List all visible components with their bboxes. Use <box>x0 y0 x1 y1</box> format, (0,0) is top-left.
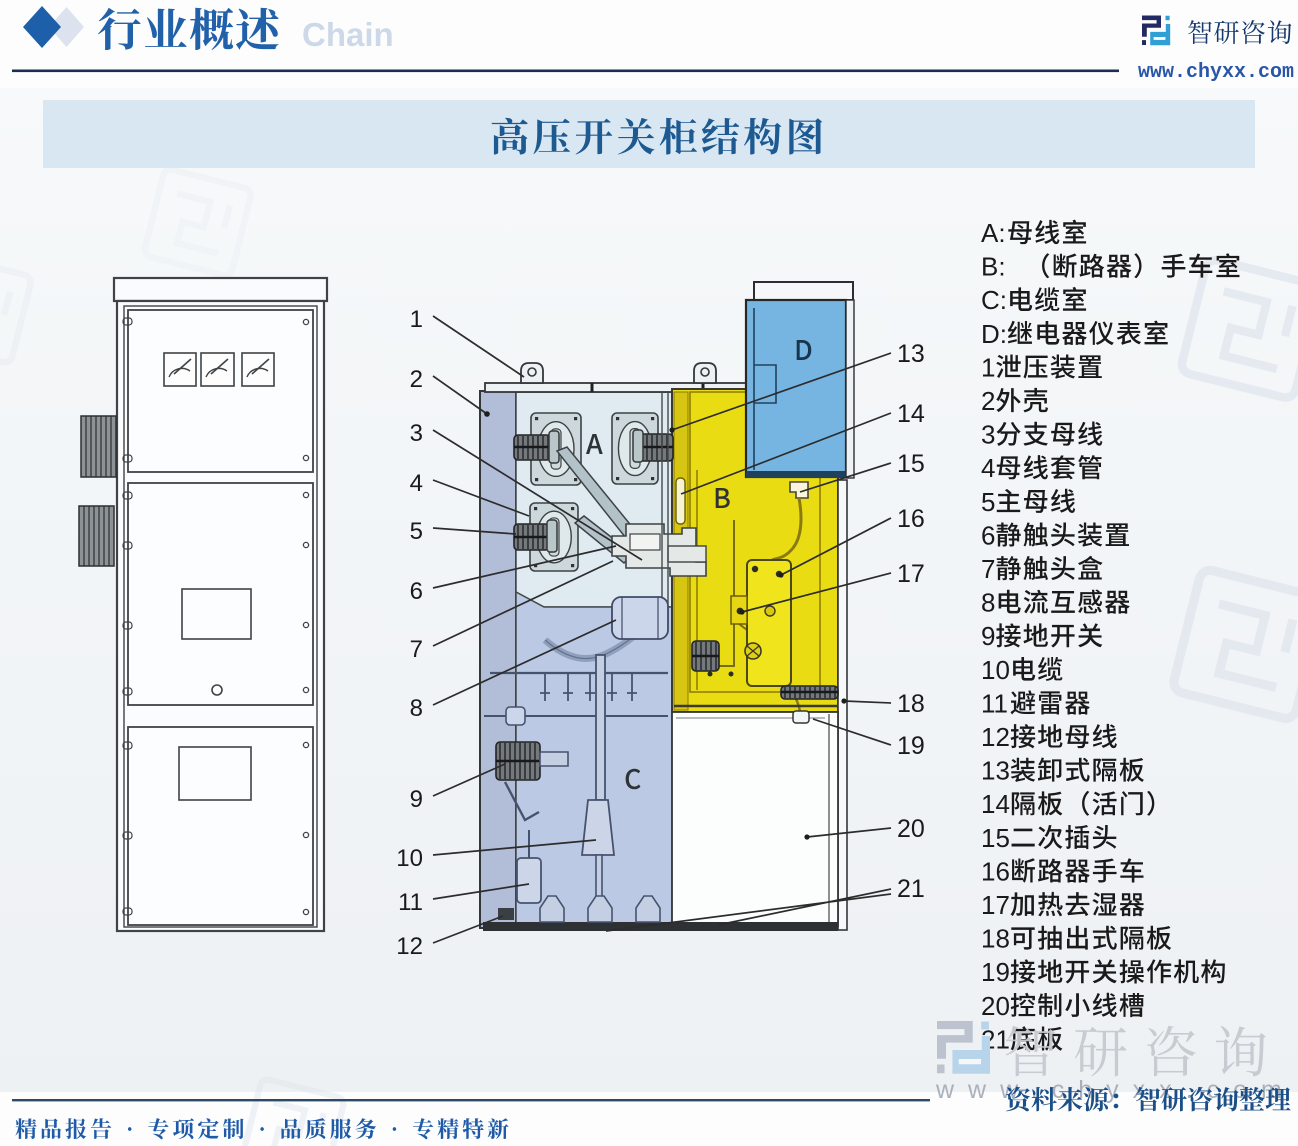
svg-text:4: 4 <box>410 470 423 497</box>
svg-text:16: 16 <box>897 505 925 533</box>
svg-text:17: 17 <box>897 560 925 588</box>
svg-text:10: 10 <box>981 655 1010 685</box>
svg-text:12: 12 <box>981 722 1010 752</box>
svg-text:2: 2 <box>981 386 995 416</box>
svg-text:2: 2 <box>410 366 423 393</box>
svg-text:6: 6 <box>981 520 995 550</box>
svg-text:www.chyxx.com: www.chyxx.com <box>1138 61 1294 84</box>
svg-text:16: 16 <box>981 856 1010 886</box>
svg-text:6: 6 <box>410 578 423 605</box>
svg-text:9: 9 <box>410 786 423 813</box>
svg-text:1: 1 <box>410 306 423 333</box>
svg-text:A:: A: <box>981 218 1006 248</box>
svg-text:9: 9 <box>981 621 995 651</box>
svg-text:15: 15 <box>897 450 925 478</box>
svg-text:10: 10 <box>396 845 423 872</box>
svg-text:14: 14 <box>897 400 925 428</box>
svg-text:15: 15 <box>981 823 1010 853</box>
svg-text:13: 13 <box>897 340 925 368</box>
svg-text:21: 21 <box>897 875 925 903</box>
svg-text:20: 20 <box>897 815 925 843</box>
svg-text:17: 17 <box>981 890 1010 920</box>
svg-text:7: 7 <box>981 554 995 584</box>
svg-text:8: 8 <box>981 588 995 618</box>
svg-text:20: 20 <box>981 991 1010 1021</box>
svg-text:1: 1 <box>981 352 995 382</box>
svg-text:B:: B: <box>981 252 1006 282</box>
svg-text:7: 7 <box>410 636 423 663</box>
svg-text:Chain: Chain <box>302 16 394 53</box>
svg-text:3: 3 <box>981 420 995 450</box>
svg-text:11: 11 <box>398 889 423 916</box>
svg-text:13: 13 <box>981 756 1010 786</box>
svg-text:3: 3 <box>410 420 423 447</box>
svg-text:11: 11 <box>981 688 1008 718</box>
svg-text:D:: D: <box>981 319 1007 349</box>
svg-text:19: 19 <box>897 732 925 760</box>
svg-text:18: 18 <box>897 690 925 718</box>
svg-text:19: 19 <box>981 957 1010 987</box>
svg-text:5: 5 <box>410 518 423 545</box>
svg-text:8: 8 <box>410 695 423 722</box>
svg-text:14: 14 <box>981 789 1010 819</box>
svg-text:12: 12 <box>396 933 423 960</box>
svg-text:5: 5 <box>981 487 995 517</box>
svg-text:C:: C: <box>981 285 1007 315</box>
svg-text:18: 18 <box>981 924 1010 954</box>
svg-text:4: 4 <box>981 453 995 483</box>
